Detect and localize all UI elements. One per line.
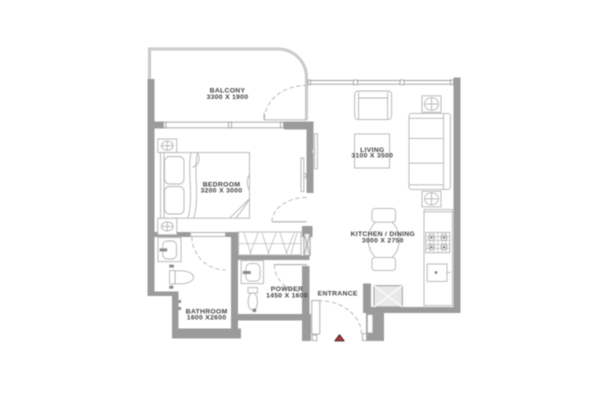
svg-text:3300 X 1900: 3300 X 1900 xyxy=(207,94,249,101)
svg-text:ENTRANCE: ENTRANCE xyxy=(318,290,358,297)
svg-text:1600 X2600: 1600 X2600 xyxy=(187,315,227,322)
svg-text:1450 X 1600: 1450 X 1600 xyxy=(266,292,308,299)
svg-text:3200 X 3000: 3200 X 3000 xyxy=(201,188,243,195)
svg-text:3100 X 3500: 3100 X 3500 xyxy=(351,153,393,160)
svg-text:3000 X 2750: 3000 X 2750 xyxy=(362,238,404,245)
